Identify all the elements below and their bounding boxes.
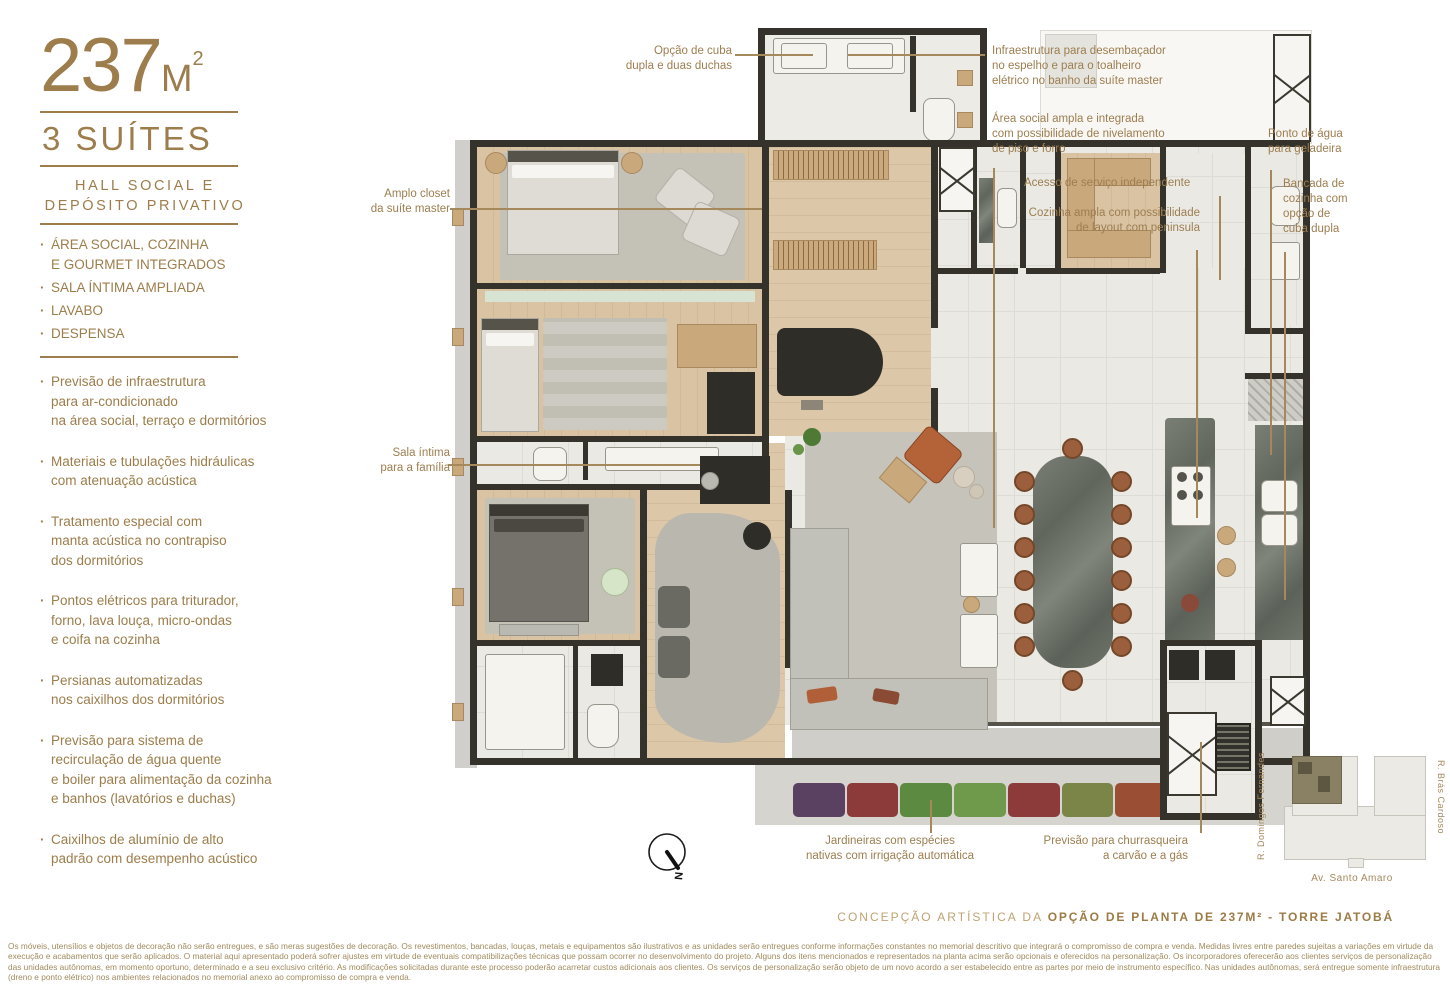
facade-fin (452, 588, 464, 606)
bedroom2-rug (543, 318, 667, 430)
lavabo-vanity (979, 178, 994, 243)
street-label-bottom: Av. Santo Amaro (1256, 873, 1448, 884)
barbecue-grill (1215, 723, 1251, 771)
dining-chair (1014, 504, 1035, 525)
closet-wardrobe (773, 240, 877, 270)
hall-subtitle: HALL SOCIAL E DEPÓSITO PRIVATIVO (40, 176, 250, 216)
service-stair (1248, 379, 1303, 421)
callout-cuba: Opção de cuba dupla e duas duchas (560, 44, 732, 74)
dining-chair (1111, 570, 1132, 591)
keyplan-unit-detail (1298, 762, 1312, 774)
facade-fin (452, 208, 464, 226)
desk-chair (701, 472, 719, 490)
caption-bold: OPÇÃO DE PLANTA DE 237M² - TORRE JATOBÁ (1048, 910, 1394, 924)
divider (40, 356, 238, 358)
wall (1160, 640, 1262, 646)
keyplan: R. Domingos Fernandes R. Brás Cardoso Av… (1256, 742, 1448, 884)
dining-chair (1111, 537, 1132, 558)
svg-text:N: N (672, 871, 685, 880)
bedroom2-bed (481, 318, 539, 432)
divider (40, 165, 238, 167)
callout-bancada: Bancada de cozinha com opção de cuba dup… (1283, 177, 1393, 237)
stool (1217, 526, 1236, 545)
dining-chair (1111, 603, 1132, 624)
callout-jardineiras: Jardineiras com espécies nativas com irr… (790, 834, 990, 864)
leader-line-sala-intima (448, 464, 700, 466)
sidebar: 237M2 3 SUÍTES HALL SOCIAL E DEPÓSITO PR… (40, 28, 272, 890)
dining-chair (1111, 636, 1132, 657)
plant (793, 444, 804, 455)
washer (591, 654, 623, 686)
planter-plants (900, 783, 952, 817)
bedroom3-bed (489, 504, 589, 622)
leader-line-jardineiras (930, 800, 932, 833)
dining-chair (1062, 438, 1083, 459)
dining-chair (1111, 471, 1132, 492)
planter-plants (1008, 783, 1060, 817)
feature-item: Persianas automatizadas nos caixilhos do… (40, 671, 272, 710)
leader-line-ponto-agua (1270, 170, 1272, 455)
side-table (963, 596, 980, 613)
wall (1160, 640, 1167, 820)
burner (1177, 490, 1187, 500)
bed-bench (499, 624, 579, 636)
master-bed (507, 150, 619, 255)
feature-item: Tratamento especial com manta acústica n… (40, 512, 272, 571)
keyplan-tower (1374, 756, 1426, 816)
elevator-icon (939, 147, 975, 212)
leader-line-cozinha (1196, 250, 1198, 518)
dining-chair (1062, 670, 1083, 691)
sectional-sofa (790, 678, 988, 730)
street-label-right: R. Brás Cardoso (1436, 760, 1446, 834)
leader-line-churrasqueira (1200, 742, 1202, 833)
features-caps-list: ÁREA SOCIAL, COZINHA E GOURMET INTEGRADO… (40, 235, 272, 344)
area-title: 237M2 (40, 28, 272, 104)
area-value: 237 (40, 23, 161, 108)
planter-plants (793, 783, 845, 817)
leader-line-infra (848, 54, 985, 56)
sink (1261, 480, 1298, 512)
stool (1217, 558, 1236, 577)
closet-wardrobe (773, 150, 889, 180)
feature-item: Previsão de infraestrutura para ar-condi… (40, 372, 272, 431)
artistic-caption: CONCEPÇÃO ARTÍSTICA DA OPÇÃO DE PLANTA D… (837, 910, 1394, 924)
piano (777, 328, 883, 396)
dining-chair (1014, 603, 1035, 624)
dining-chair (1014, 636, 1035, 657)
headboard-glass (485, 291, 755, 302)
facade-fin (452, 458, 464, 476)
features-list: Previsão de infraestrutura para ar-condi… (40, 372, 272, 869)
washer (1169, 650, 1199, 680)
callout-cozinha: Cozinha ampla com possibilidade de layou… (1000, 206, 1200, 236)
shower-valve (957, 112, 973, 128)
piano-bench (801, 400, 823, 410)
divider (40, 111, 238, 113)
divider (40, 223, 238, 225)
recliner (658, 636, 690, 678)
ottoman (743, 522, 771, 550)
legal-disclaimer: Os móveis, utensílios e objetos de decor… (8, 941, 1444, 983)
dining-chair (1014, 537, 1035, 558)
planter-plants (847, 783, 899, 817)
street-label-left: R. Domingos Fernandes (1256, 752, 1266, 860)
dining-chair (1014, 570, 1035, 591)
sink (781, 43, 827, 69)
feature-item: ÁREA SOCIAL, COZINHA E GOURMET INTEGRADO… (40, 235, 272, 275)
feature-item: LAVABO (40, 301, 272, 321)
facade-fin (452, 328, 464, 346)
wall (470, 140, 477, 765)
keyplan-unit-detail (1318, 776, 1330, 792)
armchair (960, 543, 998, 597)
wall (477, 283, 762, 289)
leader-line-cuba (735, 54, 813, 56)
wall (573, 646, 578, 758)
area-unit: M (161, 58, 193, 100)
callout-churrasqueira: Previsão para churrasqueira a carvão e a… (1016, 834, 1188, 864)
side-table (969, 484, 984, 499)
elevator-shaft-icon (1273, 34, 1311, 142)
plant (803, 428, 821, 446)
recliner (658, 586, 690, 628)
burner (1193, 490, 1203, 500)
callout-infra: Infraestrutura para desembaçador no espe… (992, 44, 1242, 89)
feature-item: Pontos elétricos para triturador, forno,… (40, 591, 272, 650)
feature-item: Previsão para sistema de recirculação de… (40, 731, 272, 809)
wall (640, 490, 647, 765)
callout-closet: Amplo closet da suíte master (338, 187, 450, 217)
feature-item: Materiais e tubulações hidráulicas com a… (40, 452, 272, 491)
planter-boxes (793, 783, 1167, 817)
floorplan-sheet: 237M2 3 SUÍTES HALL SOCIAL E DEPÓSITO PR… (0, 0, 1450, 990)
planter-plants (1062, 783, 1114, 817)
toilet (587, 704, 619, 748)
wall (931, 140, 938, 328)
toilet (923, 98, 955, 142)
bedroom2-shelf (707, 372, 755, 434)
wall (762, 140, 769, 490)
area-superscript: 2 (192, 48, 203, 70)
sink (1261, 514, 1298, 546)
feature-item: Caixilhos de alumínio de alto padrão com… (40, 830, 272, 869)
pouf (601, 568, 629, 596)
burner (1177, 472, 1187, 482)
leader-line-area-social (993, 168, 995, 528)
feature-item: DESPENSA (40, 324, 272, 344)
wall (1026, 268, 1160, 274)
wall (1160, 813, 1262, 820)
leader-line-closet (450, 208, 762, 210)
elevator-icon (1167, 712, 1217, 796)
side-table (485, 152, 507, 174)
armchair (960, 614, 998, 668)
callout-sala-intima: Sala íntima para a família (346, 446, 450, 476)
wall (938, 268, 1018, 274)
shower-valve (957, 70, 973, 86)
dining-chair (1014, 471, 1035, 492)
callout-ponto-agua: Ponto de água para geladeira (1268, 127, 1378, 157)
shower (485, 654, 565, 750)
dining-table (1033, 456, 1113, 668)
leader-line-bancada (1284, 252, 1286, 600)
compass-icon: N (645, 830, 695, 886)
side-table (621, 152, 643, 174)
dining-chair (1111, 504, 1132, 525)
burner (1193, 472, 1203, 482)
elevator-icon (1270, 676, 1306, 726)
keyplan-entrance (1348, 858, 1364, 868)
callout-area-social: Área social ampla e integrada com possib… (992, 112, 1242, 157)
wall (583, 442, 588, 480)
feature-item: SALA ÍNTIMA AMPLIADA (40, 278, 272, 298)
dryer (1205, 650, 1235, 680)
suites-title: 3 SUÍTES (42, 120, 272, 158)
shower-partition (910, 36, 916, 112)
callout-acesso: Acesso de serviço independente (1024, 176, 1224, 191)
plant (1181, 594, 1199, 612)
caption-light: CONCEPÇÃO ARTÍSTICA DA (837, 910, 1047, 924)
sink (847, 43, 893, 69)
bedroom2-desk (677, 324, 757, 368)
leader-line-acesso (1219, 196, 1221, 280)
wall (1245, 328, 1309, 334)
planter-plants (954, 783, 1006, 817)
facade-fin (452, 703, 464, 721)
